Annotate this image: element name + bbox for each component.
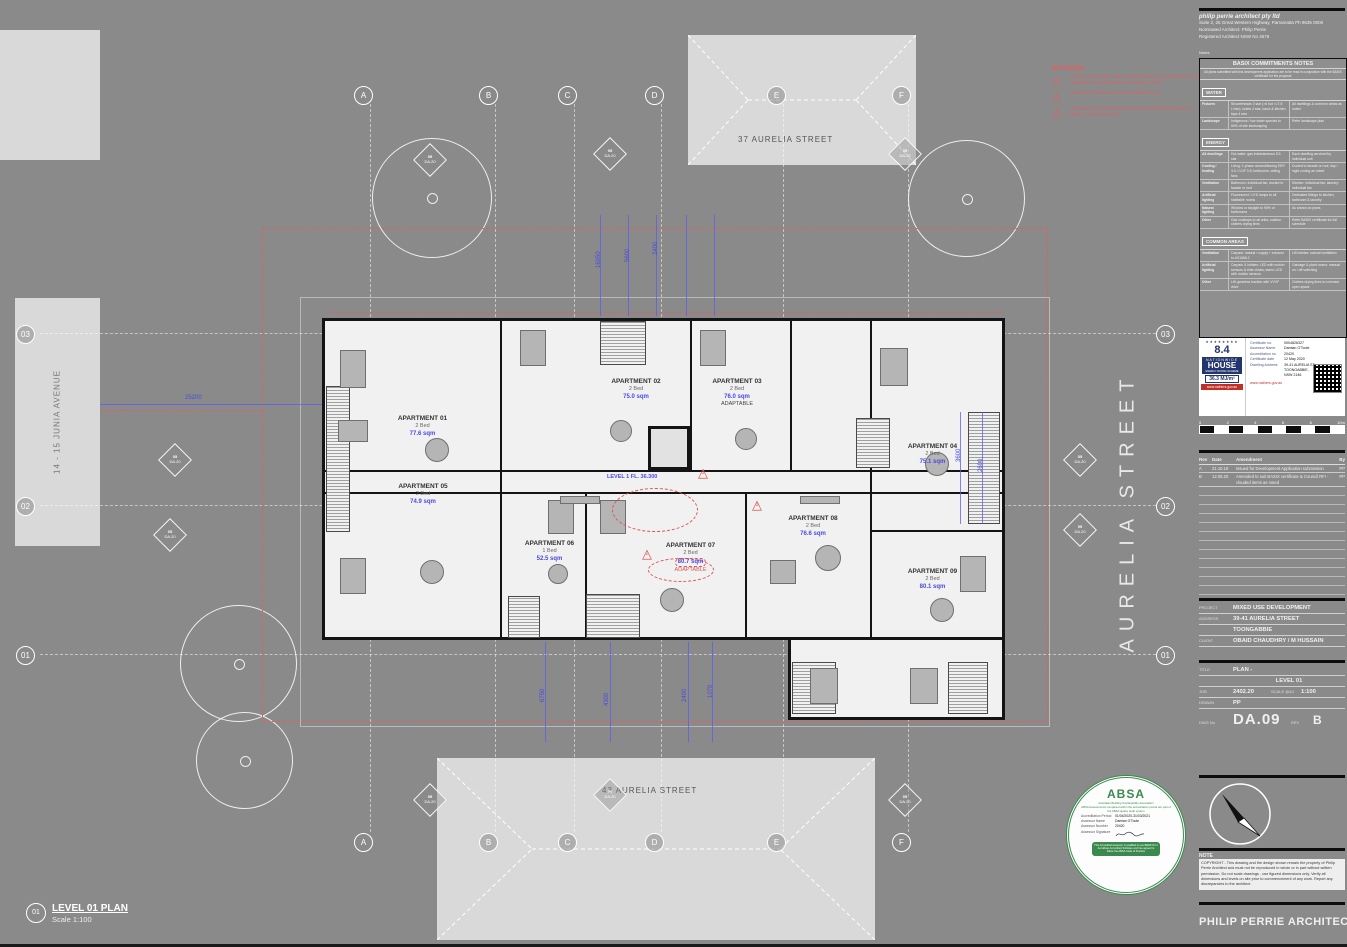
legend-item-2: △2 Apartment 07 layout and area amended … xyxy=(1052,90,1202,102)
drawing-scale: 1:100 xyxy=(1301,689,1345,695)
dimension-text: 16950 xyxy=(596,251,602,268)
copyright-note: NOTE COPYRIGHT - This drawing and the de… xyxy=(1199,853,1345,890)
project-suburb: TOONGABBIE xyxy=(1233,627,1345,633)
drawing-block: TITLEPLAN - LEVEL 01 JOB2402.20 SCALE @A… xyxy=(1199,665,1345,730)
grid-bubble-02-left: 02 xyxy=(16,497,35,516)
legend-item-3: △3 Lift & stair core dimensions amended … xyxy=(1052,106,1202,118)
dimension-text: 1070 xyxy=(708,685,714,698)
scale-bar: 0246810m xyxy=(1199,420,1345,434)
dimension-text: 2600 xyxy=(978,459,984,472)
dimension-line xyxy=(960,412,961,524)
star-rating-value: 8.4 xyxy=(1199,344,1245,356)
apartment-label-03: APARTMENT 032 Bed76.0 sqmADAPTABLE xyxy=(697,378,777,409)
titleblock-divider xyxy=(1199,902,1345,905)
grid-bubble-D-bottom: D xyxy=(645,833,664,852)
assessor-signature xyxy=(1115,830,1171,840)
basix-row: Artificial lightingCarpark & lobbies: LE… xyxy=(1200,262,1346,279)
dimension-line xyxy=(610,642,611,742)
apartment-label-04: APARTMENT 042 Bed75.1 sqm xyxy=(890,443,975,466)
basix-table: BASIX COMMITMENTS NOTES All plans submit… xyxy=(1199,58,1347,338)
basix-row: Cooling / heatingLiving: 1-phase aircond… xyxy=(1200,163,1346,180)
plan-scale: Scale 1:100 xyxy=(52,915,92,924)
revisions-table: RevDateAmendmentBy A21.10.19Issued for D… xyxy=(1199,455,1345,595)
plan-number-bubble: 01 xyxy=(26,903,46,923)
basix-title: BASIX COMMITMENTS NOTES xyxy=(1200,59,1346,69)
section-marker: 05DA.20 xyxy=(593,137,627,171)
basix-section-energy: ENERGY xyxy=(1200,130,1346,151)
grid-bubble-03-right: 03 xyxy=(1156,325,1175,344)
drawing-number: DA.09 xyxy=(1233,711,1291,728)
dimension-text: 2400 xyxy=(682,689,688,702)
basix-row: FixturesShowerheads 3 star (>6 but <=7.5… xyxy=(1200,101,1346,118)
drawing-sheet: 37 AURELIA STREET 14 - 15 JUNIA AVENUE 4… xyxy=(0,0,1347,947)
dimension-text: 25200 xyxy=(185,395,202,401)
drawing-title-1: PLAN - xyxy=(1233,667,1345,673)
dimension-text: 2400 xyxy=(653,242,659,255)
basix-row: Artificial lightingFluorescent / LED lam… xyxy=(1200,192,1346,204)
section-marker: 05DA.20 xyxy=(153,518,187,552)
dimension-text: 5600 xyxy=(625,249,631,262)
grid-bubble-01-left: 01 xyxy=(16,646,35,665)
dimension-text: 3600 xyxy=(956,449,962,462)
neighbour-building-nw xyxy=(0,30,100,160)
revisions-legend: REVISIONS △1 Location of hot water units… xyxy=(1052,66,1202,122)
grid-bubble-B-top: B xyxy=(479,86,498,105)
grid-bubble-C-bottom: C xyxy=(558,833,577,852)
grid-bubble-F-bottom: F xyxy=(892,833,911,852)
street-label-aurelia: AURELIA STREET xyxy=(1117,372,1140,653)
section-marker: 05DA.20 xyxy=(1063,443,1097,477)
apartment-label-05: APARTMENT 052 Bed74.9 sqm xyxy=(378,483,468,506)
neighbour-building-37-aurelia: 37 AURELIA STREET xyxy=(688,35,916,165)
apartment-label-08: APARTMENT 082 Bed76.6 sqm xyxy=(772,515,854,538)
job-number: 2402.20 xyxy=(1233,689,1271,695)
basix-section-water: WATER xyxy=(1200,80,1346,101)
dimension-text: 6750 xyxy=(540,689,546,702)
absa-footer: This Accredited Assessor is qualified to… xyxy=(1092,842,1160,856)
project-name: MIXED USE DEVELOPMENT xyxy=(1233,605,1345,611)
street-label-junia: 14 - 15 JUNIA AVENUE xyxy=(53,370,62,474)
titleblock-divider xyxy=(1199,450,1345,453)
nathers-certificate: ★★★★★★★★ 8.4 NATIONWIDEHOUSEENERGY RATIN… xyxy=(1199,338,1345,416)
revision-row-B: B12.05.20Amended to suit BASIX certifica… xyxy=(1199,473,1345,487)
grid-bubble-E-top: E xyxy=(767,86,786,105)
energy-value: 36.3 MJ/m² xyxy=(1205,375,1239,383)
section-marker: 05DA.20 xyxy=(888,783,922,817)
grid-bubble-03-left: 03 xyxy=(16,325,35,344)
street-label-37-aurelia: 37 AURELIA STREET xyxy=(738,135,833,144)
firm-name: PHILIP PERRIE ARCHITECT xyxy=(1199,916,1345,928)
warning-triangle-icon: △1 xyxy=(1052,74,1067,86)
grid-bubble-B-bottom: B xyxy=(479,833,498,852)
nathers-url: www.nathers.gov.au xyxy=(1201,384,1243,390)
plan-title: LEVEL 01 PLAN xyxy=(52,903,128,914)
dimension-line xyxy=(714,215,715,316)
revision-row-A: A21.10.19Issued for Development Applicat… xyxy=(1199,465,1345,473)
roof-lines xyxy=(688,35,916,165)
basix-row: Natural lightingWindow or skylight to 90… xyxy=(1200,205,1346,217)
project-address: 39-41 AURELIA STREET xyxy=(1233,616,1345,622)
fire-separation-line xyxy=(330,312,1002,313)
revision-triangle-3: △3 xyxy=(750,498,764,511)
project-block: PROJECTMIXED USE DEVELOPMENT ADDRESS39-4… xyxy=(1199,603,1345,647)
grid-bubble-02-right: 02 xyxy=(1156,497,1175,516)
basix-row: VentilationCarpark: natural / supply + e… xyxy=(1200,250,1346,262)
nathers-details: Certificate no.0004826327 Assessor NameD… xyxy=(1246,338,1345,416)
drawn-by: PP xyxy=(1233,700,1345,706)
grid-bubble-D-top: D xyxy=(645,86,664,105)
grid-bubble-C-top: C xyxy=(558,86,577,105)
absa-stamp: ABSA Australian Building Sustainability … xyxy=(1066,775,1186,895)
architect-info: philip perrie architect pty ltd Suite 2,… xyxy=(1199,14,1345,40)
grid-bubble-E-bottom: E xyxy=(767,833,786,852)
basix-section-common: COMMON AREAS xyxy=(1200,229,1346,250)
basix-row: VentilationBathroom: individual fan, duc… xyxy=(1200,180,1346,192)
qr-code xyxy=(1313,364,1342,393)
apartment-label-06: APARTMENT 061 Bed52.5 sqm xyxy=(512,540,587,563)
dimension-line xyxy=(686,215,687,316)
north-arrow xyxy=(1208,782,1272,851)
basix-row: All dwellingsHot water: gas instantaneou… xyxy=(1200,151,1346,163)
tree xyxy=(196,712,293,809)
warning-triangle-icon: △3 xyxy=(1052,106,1067,118)
apartment-label-09: APARTMENT 092 Bed80.1 sqm xyxy=(890,568,975,591)
legend-item-1: △1 Location of hot water units & clothes… xyxy=(1052,74,1202,86)
revision-letter: B xyxy=(1313,713,1322,727)
absa-logo: ABSA xyxy=(1069,787,1183,801)
nathers-logo: ★★★★★★★★ 8.4 NATIONWIDEHOUSEENERGY RATIN… xyxy=(1199,338,1246,416)
dimension-line xyxy=(628,215,629,316)
dimension-line xyxy=(656,215,657,316)
grid-bubble-F-top: F xyxy=(892,86,911,105)
client-name: OBAID CHAUDHRY / M HUSSAIN xyxy=(1233,638,1345,644)
apartment-label-07: APARTMENT 072 Bed80.7 sqmADAPTABLE xyxy=(648,542,733,575)
grid-bubble-01-right: 01 xyxy=(1156,646,1175,665)
dimension-text: 4300 xyxy=(604,693,610,706)
apartment-label-01: APARTMENT 012 Bed77.6 sqm xyxy=(375,415,470,438)
titleblock-divider xyxy=(1199,8,1345,11)
apartment-label-02: APARTMENT 022 Bed75.0 sqm xyxy=(600,378,672,401)
legend-title: REVISIONS xyxy=(1052,66,1202,72)
boundary-line-left xyxy=(100,410,262,411)
grid-bubble-A-top: A xyxy=(354,86,373,105)
grid-bubble-A-bottom: A xyxy=(354,833,373,852)
basix-row: OtherLift: gearless traction with VVVF d… xyxy=(1200,279,1346,291)
basix-row: OtherGas cooktops to all units; outdoor … xyxy=(1200,217,1346,229)
notes-label: Notes xyxy=(1199,50,1345,55)
dimension-line xyxy=(688,642,689,742)
drawing-title-2: LEVEL 01 xyxy=(1233,678,1345,684)
section-marker: 05DA.20 xyxy=(1063,513,1097,547)
section-marker: 05DA.20 xyxy=(158,443,192,477)
basix-subtitle: All plans submitted with this developmen… xyxy=(1200,69,1346,80)
level-rl-text: LEVEL 1 FL. 36.300 xyxy=(607,474,657,480)
titleblock-divider xyxy=(1199,598,1345,601)
titleblock-divider xyxy=(1199,848,1345,851)
basix-row: LandscapeIndigenous / low water species … xyxy=(1200,118,1346,130)
titleblock-divider xyxy=(1199,660,1345,663)
titleblock-divider xyxy=(1199,775,1345,778)
dimension-line xyxy=(100,404,322,405)
revision-triangle-1: △1 xyxy=(696,466,710,479)
revision-cloud-lift xyxy=(612,488,698,532)
warning-triangle-icon: △2 xyxy=(1052,90,1067,102)
